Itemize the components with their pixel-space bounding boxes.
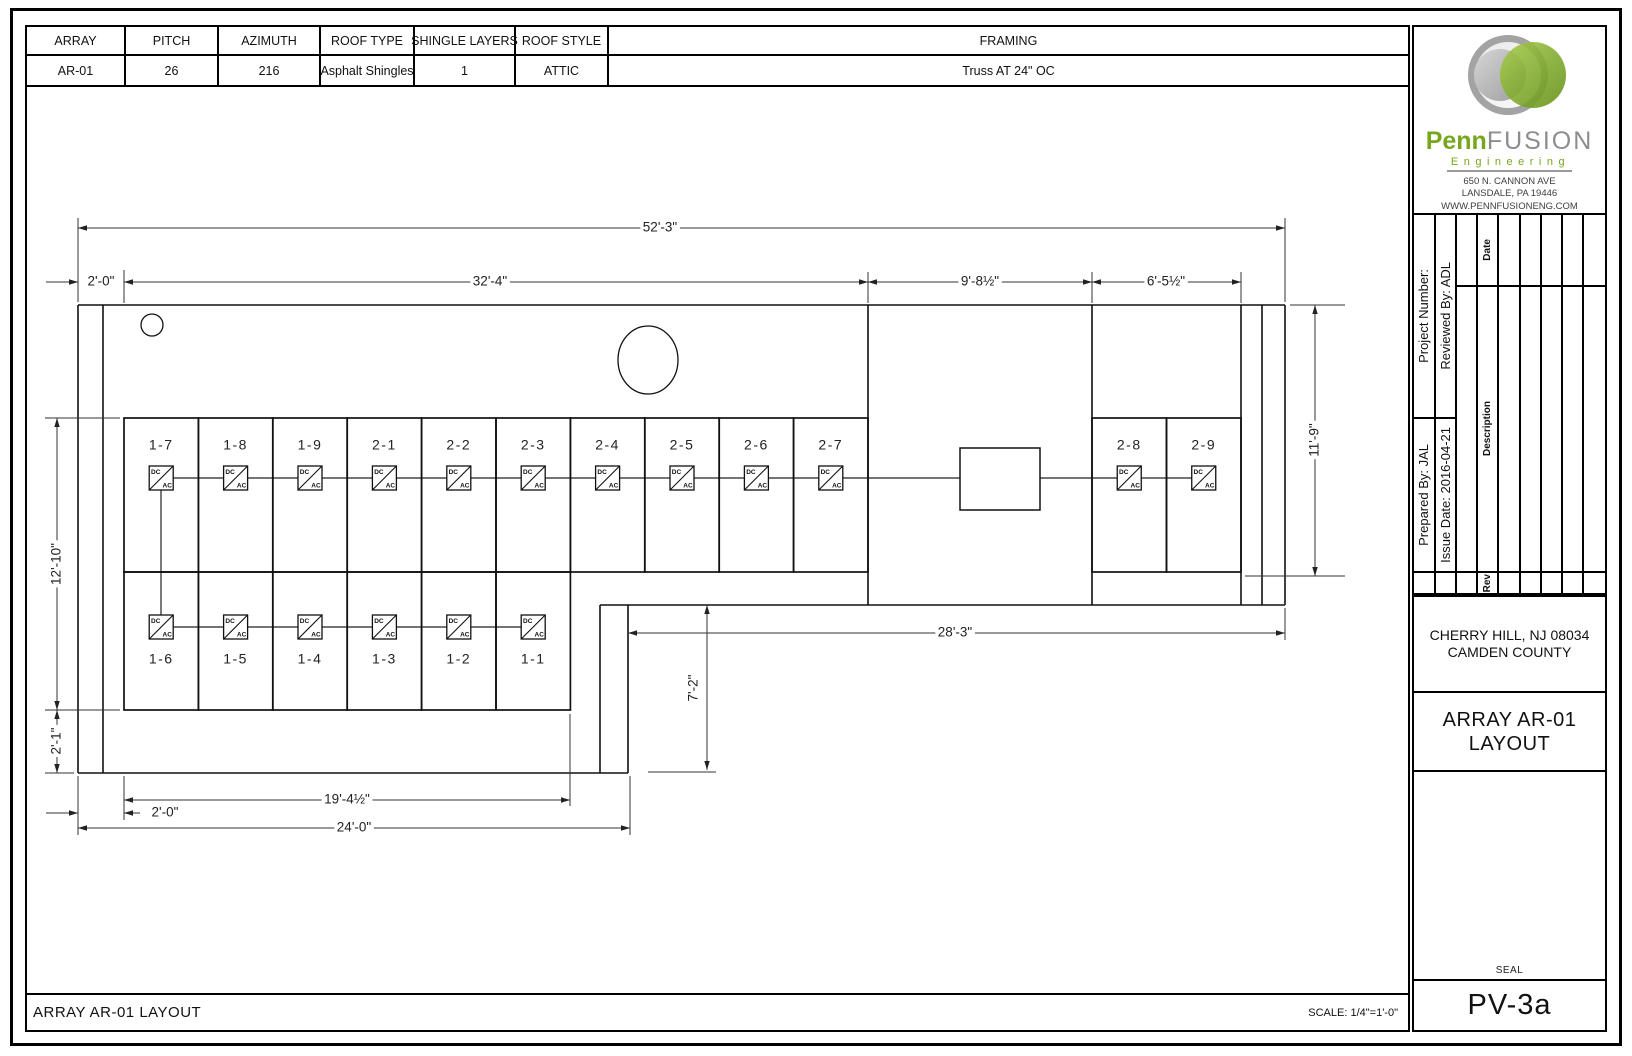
microinverter-ac-label: AC — [460, 632, 470, 639]
revision-cell — [1521, 287, 1542, 573]
microinverter-dc-label: DC — [1194, 469, 1204, 476]
spec-value-cell: AR-01 — [27, 56, 126, 85]
microinverter-dc-label: DC — [151, 469, 161, 476]
pv-module-label: 1-6 — [149, 651, 174, 667]
microinverter-dc-label: DC — [672, 469, 682, 476]
logo-wordmark: PennFUSION — [1426, 129, 1594, 154]
revision-cell — [1521, 573, 1542, 595]
revision-cell-label: Issue Date: 2016-04-21 — [1436, 419, 1458, 573]
revision-column — [1457, 215, 1478, 595]
dimension-label: 6'-5½" — [1147, 274, 1185, 289]
revision-cell — [1457, 287, 1478, 573]
pv-module-label: 1-5 — [223, 651, 248, 667]
microinverter-ac-label: AC — [832, 483, 842, 490]
revision-cell-label: Project Number: — [1414, 215, 1436, 419]
revision-cell — [1563, 287, 1584, 573]
footer-drawing-title: ARRAY AR-01 LAYOUT — [27, 1004, 201, 1021]
microinverter-ac-label: AC — [237, 483, 247, 490]
dimension-arrowhead — [124, 797, 133, 802]
revision-cell — [1499, 287, 1520, 573]
revision-column — [1542, 215, 1563, 595]
revision-column — [1563, 215, 1584, 595]
pennfusion-logo-icon — [1458, 35, 1562, 127]
pv-module-label: 1-7 — [149, 437, 174, 453]
microinverter-ac-label: AC — [460, 483, 470, 490]
pv-module — [198, 572, 272, 710]
microinverter-ac-label: AC — [163, 632, 173, 639]
spec-value-cell: 1 — [415, 56, 516, 85]
revision-cell-label: Reviewed By: ADL — [1436, 215, 1458, 419]
microinverter-ac-label: AC — [758, 483, 768, 490]
location-line-2: CAMDEN COUNTY — [1448, 644, 1572, 661]
spec-header-cell: ROOF TYPE — [321, 27, 415, 56]
logo-box: PennFUSION Engineering 650 N. CANNON AVE… — [1414, 27, 1605, 215]
microinverter-dc-label: DC — [151, 618, 161, 625]
revision-cell-label: Description — [1478, 287, 1499, 573]
dimension-arrowhead — [704, 605, 709, 614]
dimension-arrowhead — [54, 418, 59, 427]
pv-module-label: 2-2 — [446, 437, 471, 453]
dimension-arrowhead — [621, 825, 630, 830]
sheet-title-line-2: LAYOUT — [1469, 732, 1551, 756]
rotated-label: Rev — [1482, 574, 1493, 592]
microinverter-ac-label: AC — [386, 483, 396, 490]
revision-column — [1521, 215, 1542, 595]
dimension-label: 28'-3" — [938, 625, 973, 640]
revision-cell — [1436, 573, 1458, 595]
pv-module — [347, 572, 421, 710]
microinverter-dc-label: DC — [449, 618, 459, 625]
spec-header-cell: ROOF STYLE — [516, 27, 609, 56]
dimension-arrowhead — [1312, 567, 1317, 576]
roof-vent-icon — [618, 326, 678, 394]
microinverter-ac-label: AC — [163, 483, 173, 490]
dimension-label: 11'-9" — [1307, 423, 1322, 457]
dimension-arrowhead — [704, 761, 709, 770]
dimension-label: 32'-4" — [473, 274, 508, 289]
rotated-label: Description — [1482, 401, 1493, 456]
microinverter-ac-label: AC — [311, 632, 321, 639]
microinverter-dc-label: DC — [523, 618, 533, 625]
pv-module-label: 1-2 — [446, 651, 471, 667]
dimension-arrowhead — [1276, 225, 1285, 230]
dimension-arrowhead — [69, 810, 78, 815]
microinverter-dc-label: DC — [300, 469, 310, 476]
microinverter-dc-label: DC — [225, 469, 235, 476]
pv-module-label: 1-8 — [223, 437, 248, 453]
spec-value-cell: ATTIC — [516, 56, 609, 85]
logo-address: 650 N. CANNON AVE LANSDALE, PA 19446 WWW… — [1441, 176, 1578, 213]
microinverter-ac-label: AC — [535, 483, 545, 490]
microinverter-dc-label: DC — [746, 469, 756, 476]
microinverter-ac-label: AC — [609, 483, 619, 490]
microinverter-dc-label: DC — [1119, 469, 1129, 476]
spec-header-cell: ARRAY — [27, 27, 126, 56]
revision-cell — [1584, 287, 1605, 573]
revision-cell — [1584, 215, 1605, 287]
location-line-1: CHERRY HILL, NJ 08034 — [1430, 627, 1590, 644]
revision-cell — [1414, 573, 1436, 595]
dimension-arrowhead — [1232, 279, 1241, 284]
sheet-title-line-1: ARRAY AR-01 — [1443, 708, 1577, 732]
pv-module-label: 2-9 — [1191, 437, 1216, 453]
project-location-box: CHERRY HILL, NJ 08034 CAMDEN COUNTY — [1414, 597, 1605, 693]
revision-column — [1584, 215, 1605, 595]
spec-header-cell: SHINGLE LAYERS — [415, 27, 516, 56]
dimension-label: 2'-0" — [152, 805, 179, 820]
dimension-arrowhead — [628, 630, 637, 635]
pv-module-label: 2-1 — [372, 437, 397, 453]
pv-module-label: 1-3 — [372, 651, 397, 667]
dimension-arrowhead — [124, 279, 133, 284]
dimension-arrowhead — [78, 225, 87, 230]
revision-column: Project Number:Prepared By: JAL — [1414, 215, 1436, 595]
microinverter-ac-label: AC — [1131, 483, 1141, 490]
dimension-label: 24'-0" — [337, 820, 372, 835]
microinverter-ac-label: AC — [1205, 483, 1215, 490]
spec-value-cell: 216 — [219, 56, 321, 85]
logo-brand-secondary: FUSION — [1487, 127, 1593, 155]
microinverter-dc-label: DC — [225, 618, 235, 625]
revision-column — [1499, 215, 1520, 595]
rotated-label: Prepared By: JAL — [1416, 444, 1431, 546]
dimension-arrowhead — [69, 279, 78, 284]
address-website: WWW.PENNFUSIONENG.COM — [1441, 201, 1578, 213]
revision-cell — [1521, 215, 1542, 287]
spec-header-cell: PITCH — [126, 27, 219, 56]
revision-cell — [1457, 573, 1478, 595]
microinverter-dc-label: DC — [597, 469, 607, 476]
revision-cell — [1584, 573, 1605, 595]
dimension-arrowhead — [1312, 305, 1317, 314]
roof-vent-icon — [141, 314, 163, 336]
dimension-arrowhead — [1083, 279, 1092, 284]
pv-module-label: 2-8 — [1117, 437, 1142, 453]
microinverter-ac-label: AC — [237, 632, 247, 639]
revision-cell — [1542, 215, 1563, 287]
title-block: PennFUSION Engineering 650 N. CANNON AVE… — [1412, 25, 1607, 1032]
revision-cell — [1457, 215, 1478, 287]
revision-column: DateDescriptionRev — [1478, 215, 1499, 595]
dimension-arrowhead — [859, 279, 868, 284]
microinverter-ac-label: AC — [311, 483, 321, 490]
revision-cell-label: Prepared By: JAL — [1414, 419, 1436, 573]
logo-green-circle — [1500, 42, 1566, 108]
pv-module-label: 2-6 — [744, 437, 769, 453]
spec-value-cell: 26 — [126, 56, 219, 85]
pv-module-label: 2-4 — [595, 437, 620, 453]
dimension-label: 19'-4½" — [324, 792, 370, 807]
footer-strip: ARRAY AR-01 LAYOUT SCALE: 1/4"=1'-0" — [25, 993, 1410, 1032]
sheet-title-box: ARRAY AR-01 LAYOUT — [1414, 693, 1605, 772]
dimension-arrowhead — [124, 810, 133, 815]
spec-value-cell: Truss AT 24" OC — [609, 56, 1408, 85]
revision-info-grid: Project Number:Prepared By: JALReviewed … — [1414, 215, 1605, 597]
microinverter-dc-label: DC — [449, 469, 459, 476]
dimension-label: 7'-2" — [686, 674, 701, 701]
dimension-label: 52'-3" — [643, 220, 678, 235]
dimension-arrowhead — [1276, 630, 1285, 635]
dimension-label: 2'-1" — [49, 727, 64, 754]
pv-module-label: 1-9 — [298, 437, 323, 453]
microinverter-dc-label: DC — [300, 618, 310, 625]
revision-column: Reviewed By: ADLIssue Date: 2016-04-21 — [1436, 215, 1458, 595]
dimension-label: 12'-10" — [49, 543, 64, 585]
revision-cell — [1499, 215, 1520, 287]
microinverter-ac-label: AC — [683, 483, 693, 490]
revision-cell-label: Rev — [1478, 573, 1499, 595]
revision-cell — [1563, 573, 1584, 595]
address-line-1: 650 N. CANNON AVE — [1441, 176, 1578, 188]
rotated-label: Date — [1482, 239, 1493, 261]
revision-cell-label: Date — [1478, 215, 1499, 287]
pv-module — [273, 572, 347, 710]
dimension-arrowhead — [54, 710, 59, 719]
sheet-number: PV-3a — [1414, 981, 1605, 1030]
dimension-label: 2'-0" — [88, 274, 115, 289]
junction-box — [960, 448, 1040, 510]
address-line-2: LANSDALE, PA 19446 — [1441, 188, 1578, 200]
dimension-arrowhead — [78, 825, 87, 830]
seal-box: SEAL — [1414, 772, 1605, 981]
revision-cell — [1499, 573, 1520, 595]
revision-cell — [1542, 573, 1563, 595]
microinverter-ac-label: AC — [535, 632, 545, 639]
dimension-arrowhead — [54, 764, 59, 773]
microinverter-dc-label: DC — [374, 469, 384, 476]
pv-module-label: 1-4 — [298, 651, 323, 667]
dimension-arrowhead — [868, 279, 877, 284]
rotated-label: Issue Date: 2016-04-21 — [1438, 427, 1453, 563]
dimension-arrowhead — [1092, 279, 1101, 284]
spec-value-cell: Asphalt Shingles — [321, 56, 415, 85]
rotated-label: Project Number: — [1416, 269, 1431, 363]
microinverter-dc-label: DC — [821, 469, 831, 476]
seal-label: SEAL — [1414, 965, 1605, 976]
logo-tagline: Engineering — [1447, 155, 1572, 172]
revision-cell — [1563, 215, 1584, 287]
logo-brand-primary: Penn — [1426, 127, 1487, 155]
microinverter-dc-label: DC — [374, 618, 384, 625]
dimension-arrowhead — [54, 701, 59, 710]
microinverter-ac-label: AC — [386, 632, 396, 639]
roof-drawing: 1-7DCAC1-8DCAC1-9DCAC2-1DCAC2-2DCAC2-3DC… — [0, 0, 1632, 1056]
spec-header-cell: AZIMUTH — [219, 27, 321, 56]
pv-module-label: 1-1 — [521, 651, 546, 667]
pv-module-label: 2-7 — [818, 437, 843, 453]
dimension-arrowhead — [561, 797, 570, 802]
pv-module — [422, 572, 496, 710]
rotated-label: Reviewed By: ADL — [1438, 262, 1453, 370]
microinverter-dc-label: DC — [523, 469, 533, 476]
pv-module — [496, 572, 570, 710]
footer-scale: SCALE: 1/4"=1'-0" — [1308, 1007, 1408, 1019]
spec-header-cell: FRAMING — [609, 27, 1408, 56]
dimension-label: 9'-8½" — [961, 274, 999, 289]
pv-module-label: 2-5 — [670, 437, 695, 453]
pv-module-label: 2-3 — [521, 437, 546, 453]
spec-table: ARRAYPITCHAZIMUTHROOF TYPESHINGLE LAYERS… — [25, 25, 1410, 87]
revision-cell — [1542, 287, 1563, 573]
